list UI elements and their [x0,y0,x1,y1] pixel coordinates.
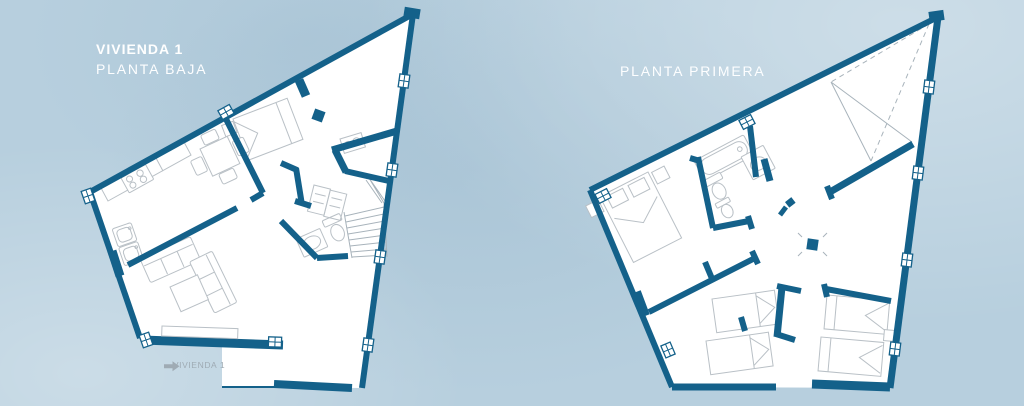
plan-sheet: VIVIENDA 1 PLANTA BAJA PLANTA PRIMERA VI… [0,0,1024,406]
entry-arrow-icon [164,361,180,372]
pb-bench [162,326,238,339]
pp-bed-4 [818,337,884,376]
left-plan-subtitle: PLANTA BAJA [96,61,207,77]
right-plan-title: PLANTA PRIMERA [620,63,766,79]
entry-label: VIVIENDA 1 [164,360,234,370]
entry-label-text: VIVIENDA 1 [173,360,225,370]
left-plan-title: VIVIENDA 1 [96,41,183,57]
